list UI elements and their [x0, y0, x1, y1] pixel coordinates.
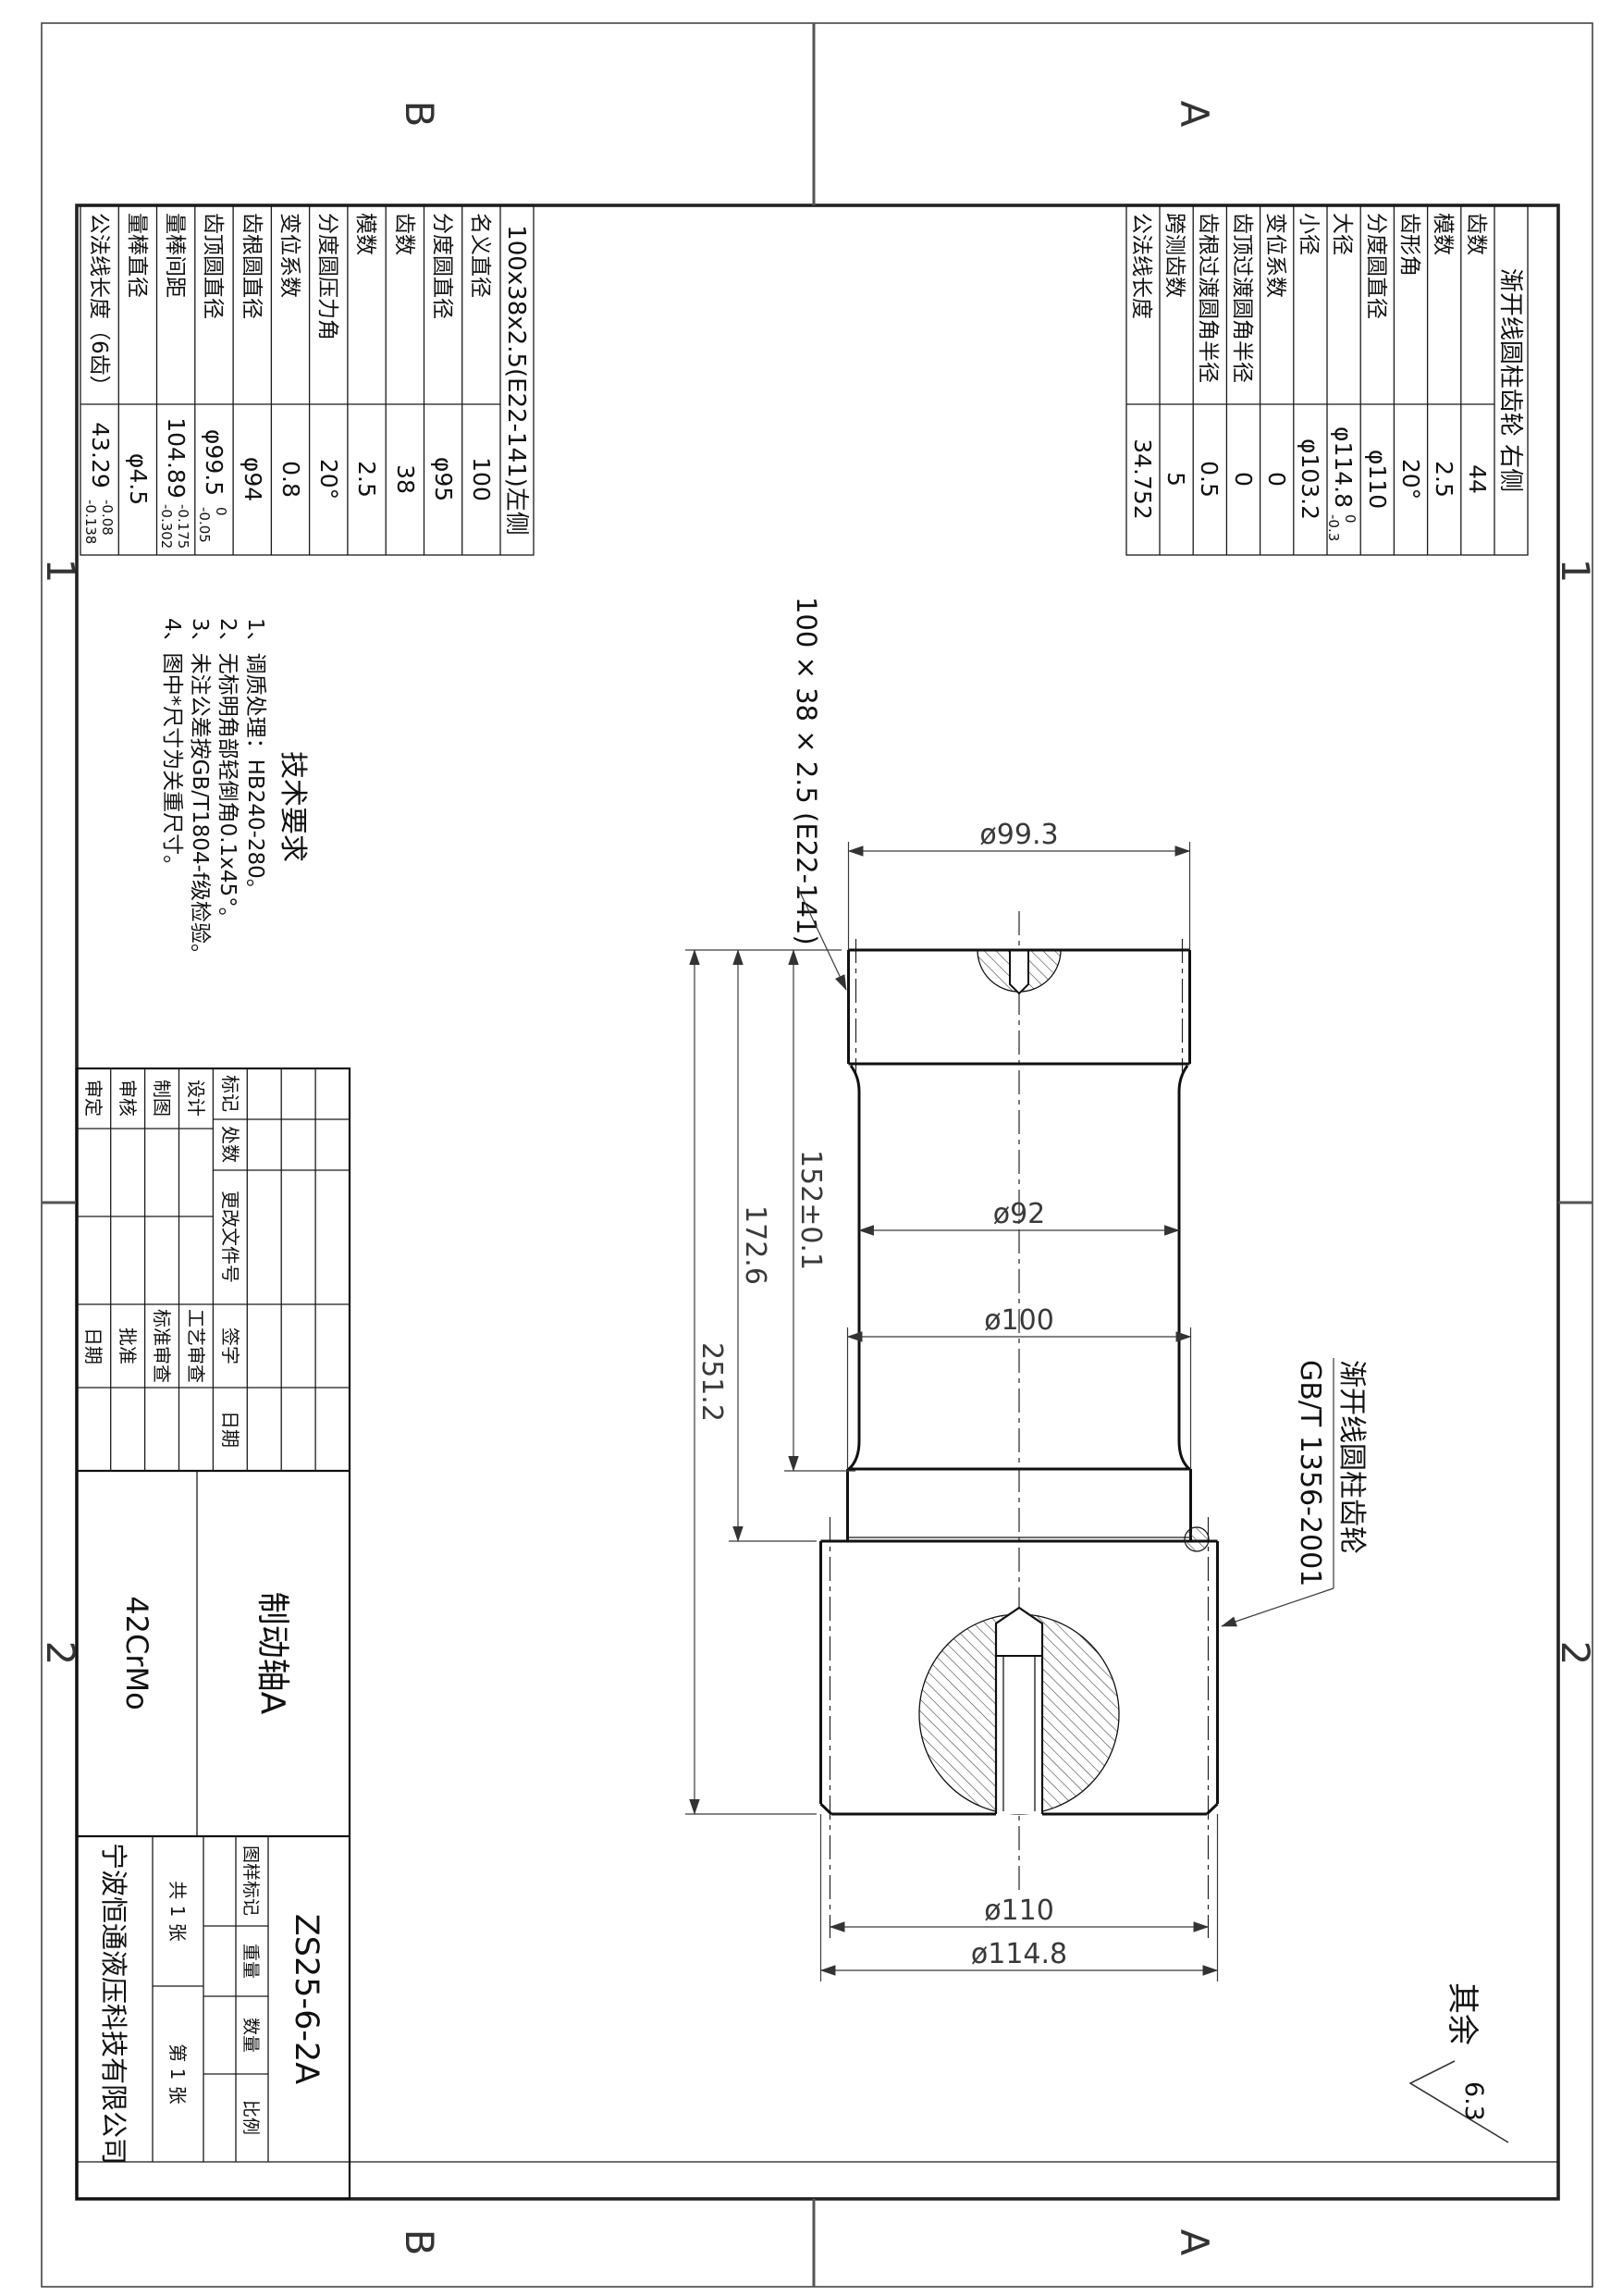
svg-text:φ94: φ94	[240, 457, 266, 501]
dimensions: ø99.3 ø92 ø100 ø110 ø114.8	[685, 819, 1218, 1981]
svg-text:标准审查: 标准审查	[151, 1309, 173, 1383]
svg-text:38: 38	[392, 464, 419, 494]
svg-text:小径: 小径	[1297, 213, 1321, 255]
svg-text:日期: 日期	[219, 1411, 241, 1448]
svg-text:公法线长度（6齿）: 公法线长度（6齿）	[87, 213, 111, 397]
svg-text:-0.138: -0.138	[82, 500, 99, 544]
title-block: 标记 处数 更改文件号 签字 日期 设计 工艺审查 制图 标准审查 审核 批准 …	[77, 1068, 350, 2199]
zone-label: B	[397, 101, 442, 128]
tech-line: 4、图中*尺寸为关重尺寸。	[160, 618, 184, 876]
gear-table-left: 100x38x2.5(E22-141)左侧 名义直径 分度圆直径 齿数 模数 分…	[80, 205, 534, 555]
relief-groove	[1185, 1527, 1209, 1551]
gear-table-left-labels: 名义直径 分度圆直径 齿数 模数 分度圆压力角 变位系数 齿根圆直径 齿顶圆直径…	[87, 213, 492, 397]
svg-text:φ110: φ110	[1364, 450, 1391, 509]
svg-text:齿顶过渡圆角半径: 齿顶过渡圆角半径	[1230, 213, 1254, 383]
svg-text:更改文件号: 更改文件号	[219, 1191, 241, 1283]
svg-text:名义直径: 名义直径	[468, 213, 492, 298]
sheet-total: 共 1 张	[166, 1881, 189, 1941]
svg-text:齿数: 齿数	[1464, 213, 1488, 255]
zone-label: 1	[1553, 559, 1598, 584]
svg-text:齿根圆直径: 齿根圆直径	[240, 213, 264, 319]
gear-std-text: GB/T 1356-2001	[1294, 1360, 1326, 1586]
svg-text:φ99.5: φ99.5	[201, 429, 227, 496]
svg-text:-0.08: -0.08	[99, 500, 116, 536]
svg-text:43.29: 43.29	[87, 422, 114, 488]
dim-len-152: 152±0.1	[794, 1150, 827, 1270]
dim-len-251: 251.2	[695, 1342, 728, 1422]
svg-text:日期: 日期	[82, 1327, 105, 1364]
svg-text:0: 0	[1230, 472, 1257, 487]
svg-text:大径: 大径	[1330, 213, 1354, 255]
gear-table-left-tolerances: 0 -0.05 -0.175 -0.302 -0.08 -0.138	[82, 500, 229, 549]
blueprint-page: A B A B 1 2 1 2 渐开线圆柱齿轮 右侧 齿数	[0, 0, 1623, 2296]
svg-text:φ95: φ95	[430, 457, 457, 501]
dim-len-172: 172.6	[739, 1205, 771, 1285]
dim-dia-top: ø99.3	[979, 819, 1058, 851]
part-name: 制动轴A	[253, 1592, 291, 1715]
zone-label: 2	[1553, 1641, 1598, 1666]
svg-text:制图: 制图	[151, 1080, 173, 1117]
zone-label: A	[1172, 101, 1217, 128]
svg-text:44: 44	[1464, 464, 1491, 494]
zone-label: A	[1172, 2229, 1217, 2256]
svg-text:分度圆压力角: 分度圆压力角	[315, 213, 339, 340]
keyway-slot	[1010, 950, 1028, 994]
svg-text:量棒直径: 量棒直径	[125, 213, 149, 298]
svg-text:104.89: 104.89	[163, 417, 190, 498]
svg-text:0: 0	[213, 507, 229, 516]
svg-text:变位系数: 变位系数	[277, 213, 301, 298]
drawing-sheet: A B A B 1 2 1 2 渐开线圆柱齿轮 右侧 齿数	[0, 0, 1623, 2296]
svg-text:比例: 比例	[240, 2100, 261, 2135]
svg-text:数量: 数量	[240, 2018, 261, 2053]
svg-text:φ4.5: φ4.5	[125, 453, 152, 505]
gear-table-right-title: 渐开线圆柱齿轮 右侧	[1496, 268, 1524, 492]
svg-text:0.5: 0.5	[1196, 461, 1223, 498]
svg-text:分度圆直径: 分度圆直径	[1364, 213, 1388, 319]
gear-table-right: 渐开线圆柱齿轮 右侧 齿数 模数 齿形角 分度圆直径 大径 小径 变位系数 齿顶…	[1126, 205, 1528, 555]
surface-roughness: 其余 6.3	[1410, 1982, 1508, 2142]
part-view: ø99.3 ø92 ø100 ø110 ø114.8	[685, 597, 1368, 1981]
svg-text:-0.302: -0.302	[158, 504, 175, 549]
dim-dia-tip: ø114.8	[971, 1938, 1067, 1970]
revision-table: 标记 处数 更改文件号 签字 日期 设计 工艺审查 制图 标准审查 审核 批准 …	[77, 1068, 350, 1471]
svg-text:34.752: 34.752	[1129, 438, 1156, 519]
svg-text:0: 0	[1263, 472, 1290, 487]
zone-label: 1	[38, 559, 83, 584]
svg-text:公法线长度: 公法线长度	[1129, 213, 1153, 319]
drawing-number: ZS25-6-2A	[288, 1914, 325, 2085]
svg-text:重量: 重量	[240, 1944, 261, 1979]
svg-text:设计: 设计	[185, 1080, 207, 1117]
spline-annotation: 100 × 38 × 2.5 (E22-141)	[791, 597, 846, 990]
svg-text:处数: 处数	[219, 1126, 241, 1163]
svg-text:齿顶圆直径: 齿顶圆直径	[201, 213, 225, 319]
tech-title: 技术要求	[277, 751, 309, 862]
svg-text:批准: 批准	[117, 1327, 139, 1364]
tech-line: 2、无标明角部轻倒角0.1x45°。	[215, 618, 240, 929]
svg-text:2.5: 2.5	[1431, 461, 1457, 498]
svg-text:20°: 20°	[1397, 459, 1424, 500]
svg-text:-0.175: -0.175	[175, 504, 191, 549]
roughness-icon	[1410, 2061, 1508, 2142]
svg-text:齿数: 齿数	[392, 213, 416, 255]
svg-text:变位系数: 变位系数	[1263, 213, 1287, 298]
svg-text:工艺审查: 工艺审查	[185, 1309, 207, 1383]
dim-dia-mid: ø92	[993, 1198, 1046, 1230]
gear-table-right-labels: 齿数 模数 齿形角 分度圆直径 大径 小径 变位系数 齿顶过渡圆角半径 齿根过渡…	[1129, 213, 1488, 383]
roughness-value: 6.3	[1459, 2081, 1488, 2121]
gear-standard-annotation: 渐开线圆柱齿轮 GB/T 1356-2001	[1222, 1358, 1368, 1626]
svg-text:签字: 签字	[219, 1327, 241, 1364]
tech-line: 1、调质处理：HB240-280。	[243, 618, 267, 900]
svg-text:0: 0	[1342, 514, 1359, 524]
svg-text:模数: 模数	[1431, 213, 1455, 255]
dim-dia-collar: ø100	[984, 1304, 1054, 1337]
svg-text:20°: 20°	[315, 459, 342, 500]
dim-dia-pitch: ø110	[984, 1895, 1054, 1927]
svg-text:-0.3: -0.3	[1325, 514, 1342, 541]
gear-table-left-title: 100x38x2.5(E22-141)左侧	[502, 225, 530, 536]
gear-table-left-values: 100 φ95 38 2.5 20° 0.8 φ94 φ99.5 104.89 …	[87, 417, 495, 505]
revision-headers: 标记 处数 更改文件号 签字 日期	[219, 1075, 241, 1448]
technical-requirements: 技术要求 1、调质处理：HB240-280。 2、无标明角部轻倒角0.1x45°…	[160, 618, 309, 965]
svg-text:跨测齿数: 跨测齿数	[1162, 213, 1187, 298]
svg-text:审定: 审定	[82, 1080, 105, 1117]
gear-table-right-tolerances: 0 -0.3	[1325, 514, 1359, 541]
material: 42CrMo	[119, 1596, 154, 1710]
tech-line: 3、未注公差按GB/T1804-f级检验。	[188, 618, 212, 965]
zone-label: B	[397, 2229, 442, 2256]
sheet-number: 第 1 张	[166, 2043, 189, 2104]
svg-text:φ103.2: φ103.2	[1297, 438, 1323, 520]
svg-text:审核: 审核	[117, 1080, 139, 1117]
svg-text:-0.05: -0.05	[196, 507, 213, 543]
svg-text:φ114.8: φ114.8	[1330, 426, 1357, 508]
svg-text:齿根过渡圆角半径: 齿根过渡圆角半径	[1196, 213, 1220, 383]
svg-text:分度圆直径: 分度圆直径	[430, 213, 454, 319]
rest-label: 其余	[1444, 1982, 1481, 2045]
stamp-headers: 图样标记 重量 数量 比例	[240, 1845, 261, 2135]
svg-text:模数: 模数	[353, 213, 377, 255]
svg-text:标记: 标记	[219, 1075, 241, 1112]
svg-text:0.8: 0.8	[277, 461, 304, 498]
company-name: 宁波恒通液压科技有限公司	[98, 1843, 129, 2165]
gear-table-right-values: 44 2.5 20° φ110 φ114.8 φ103.2 0 0 0.5 5 …	[1129, 426, 1491, 520]
svg-text:2.5: 2.5	[353, 461, 380, 498]
svg-text:图样标记: 图样标记	[240, 1845, 261, 1916]
spline-annotation-text: 100 × 38 × 2.5 (E22-141)	[791, 597, 822, 945]
svg-text:量棒间距: 量棒间距	[163, 213, 187, 298]
svg-text:100: 100	[468, 457, 495, 501]
gear-name-text: 渐开线圆柱齿轮	[1335, 1360, 1368, 1554]
svg-text:齿形角: 齿形角	[1397, 213, 1421, 277]
svg-text:5: 5	[1162, 472, 1189, 487]
